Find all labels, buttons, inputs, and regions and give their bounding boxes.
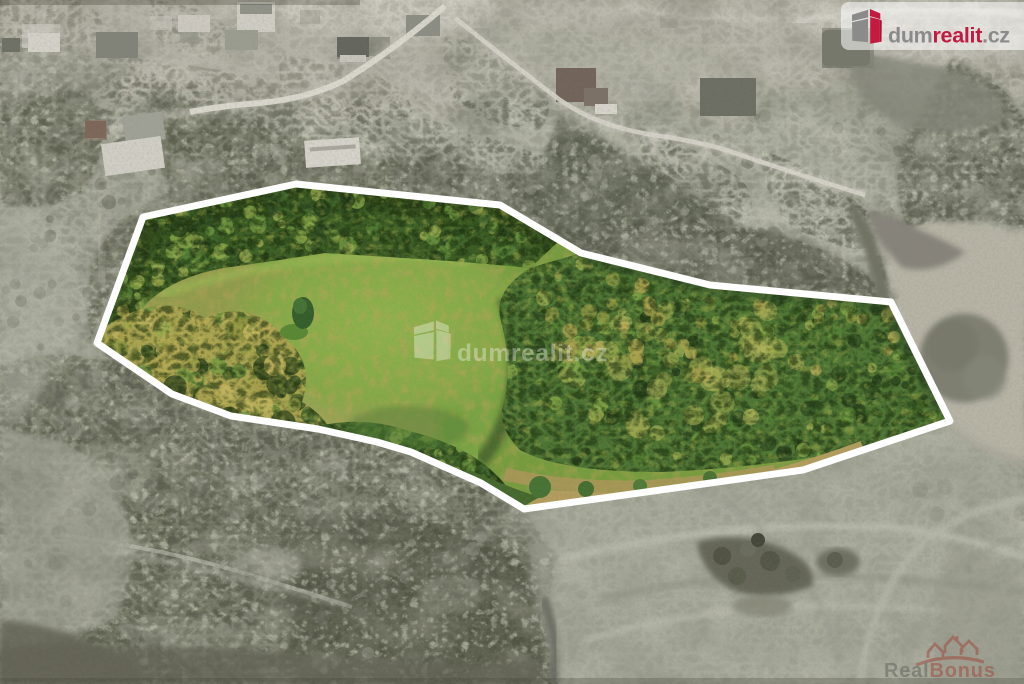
svg-text:dumrealit.cz: dumrealit.cz bbox=[888, 24, 1010, 48]
svg-text:dumrealit.cz: dumrealit.cz bbox=[457, 340, 608, 367]
svg-text:RealBonus: RealBonus bbox=[884, 660, 996, 682]
